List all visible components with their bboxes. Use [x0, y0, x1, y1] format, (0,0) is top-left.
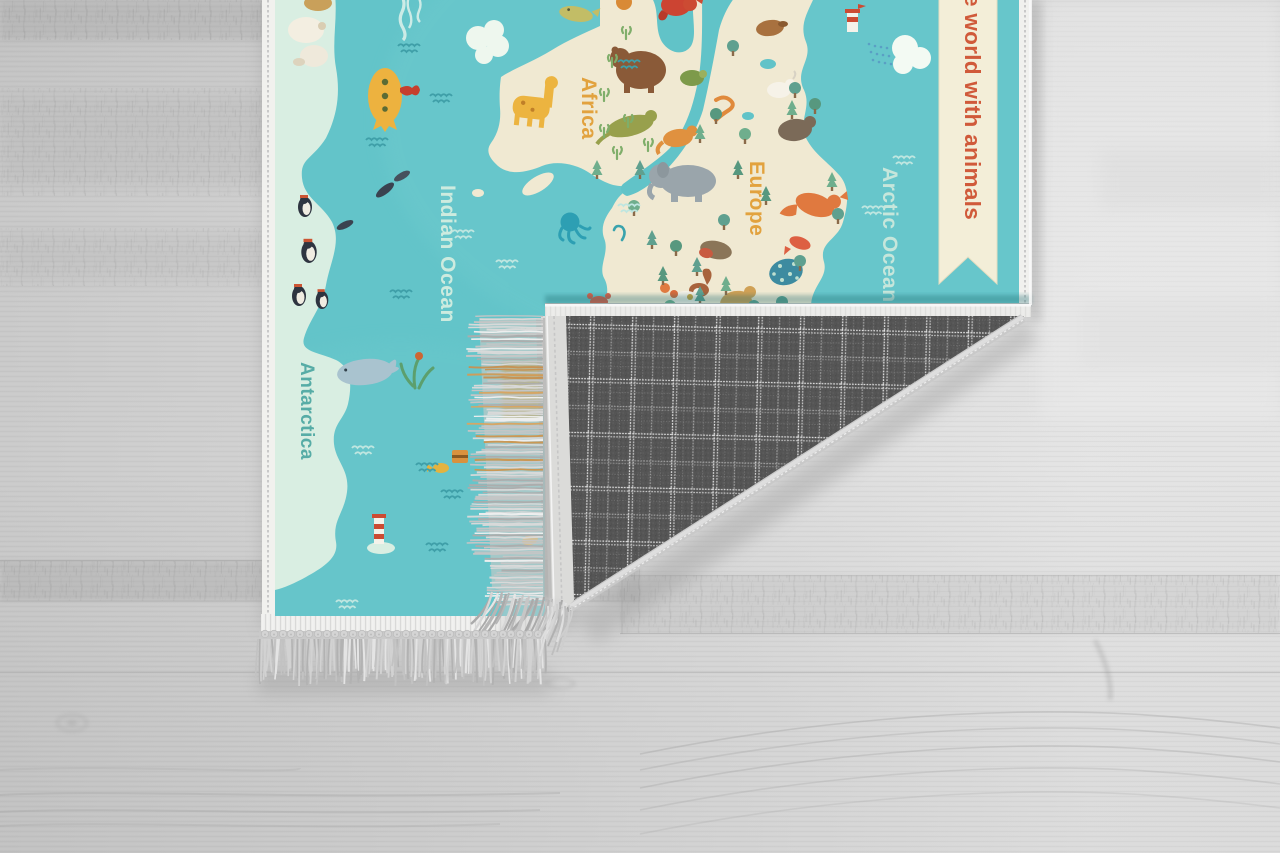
svg-text:e world with animals: e world with animals: [960, 0, 985, 220]
svg-text:Antarctica: Antarctica: [296, 362, 317, 460]
svg-text:Indian Ocean: Indian Ocean: [436, 185, 459, 323]
svg-text:Arctic Ocean: Arctic Ocean: [878, 167, 901, 303]
svg-text:Africa: Africa: [577, 77, 600, 140]
